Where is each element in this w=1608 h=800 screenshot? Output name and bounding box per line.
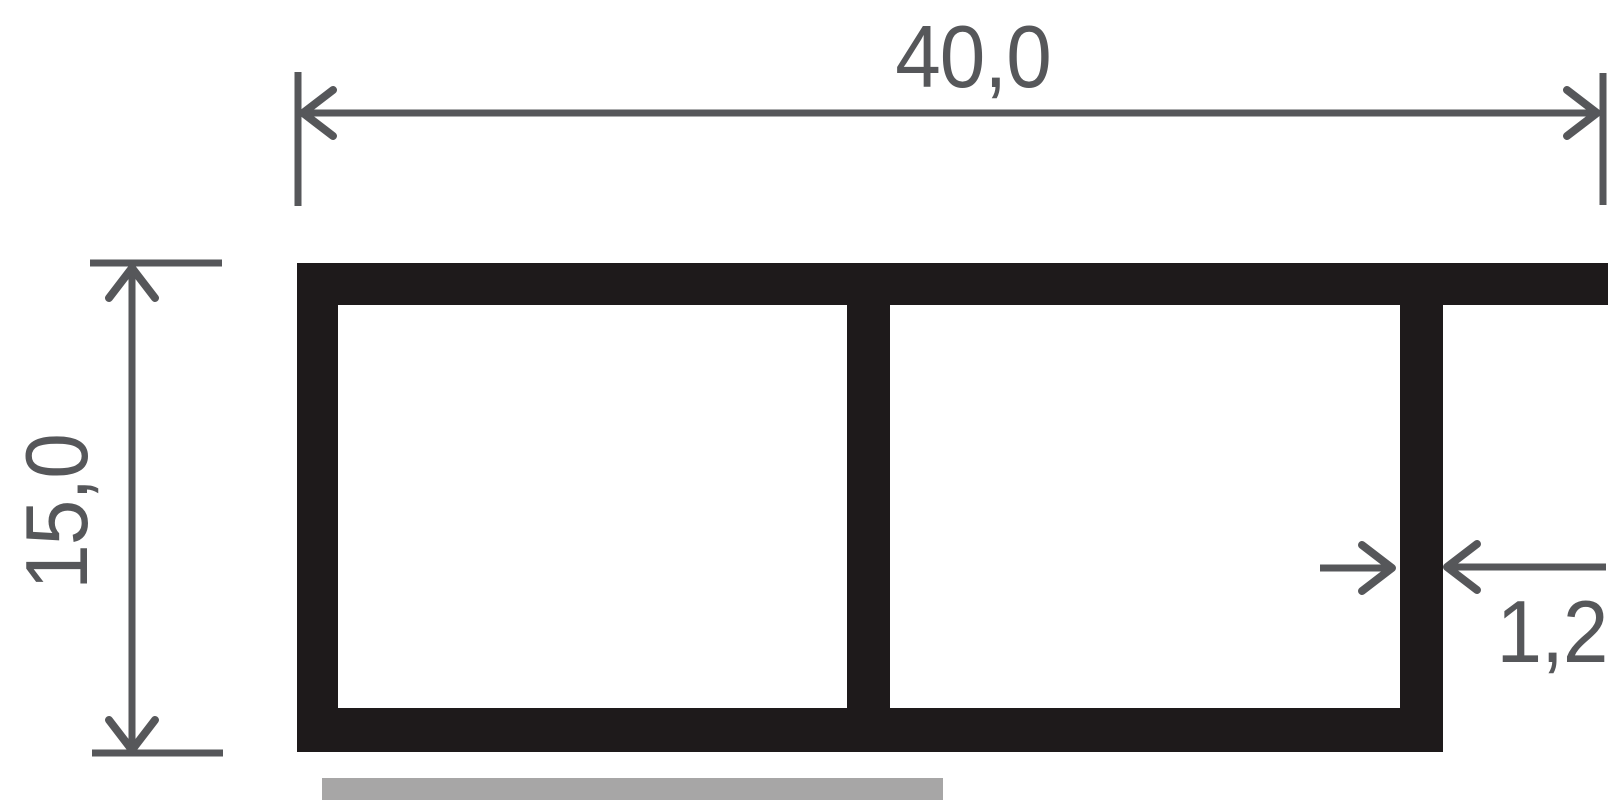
technical-drawing-canvas: 40,0 15,0 1,2 bbox=[0, 0, 1608, 800]
height-dimension bbox=[90, 263, 223, 753]
profile-drawing bbox=[0, 0, 1608, 800]
ground-bar bbox=[322, 778, 943, 800]
width-dimension-label: 40,0 bbox=[895, 13, 1051, 101]
tube-profile-cross-section bbox=[297, 263, 1608, 752]
wall-thickness-label: 1,2 bbox=[1497, 588, 1608, 676]
height-dimension-label: 15,0 bbox=[13, 434, 101, 590]
